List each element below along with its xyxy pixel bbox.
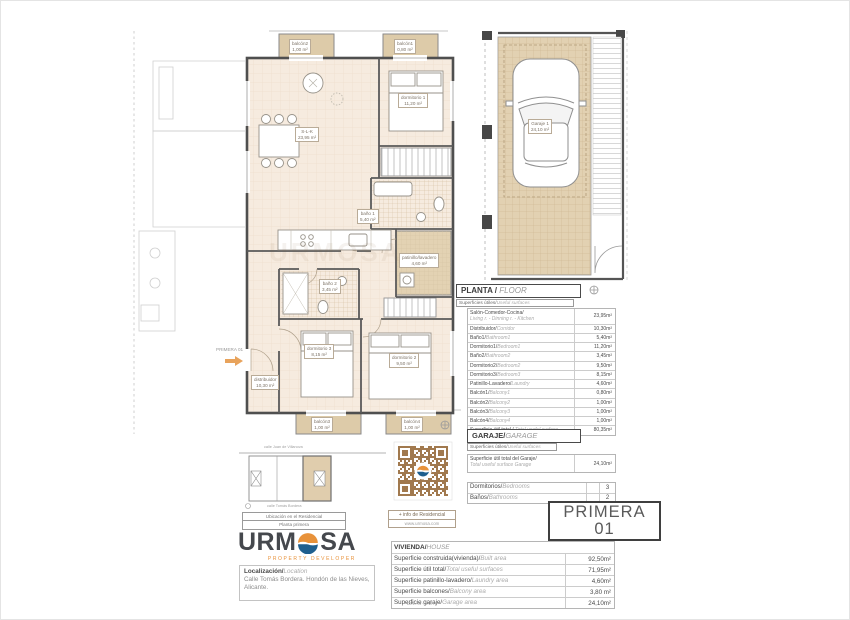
brand-logo-urm: URM bbox=[238, 530, 296, 555]
qr-caption-url: www.urmosa.com bbox=[388, 519, 456, 528]
floor-table-row: Balcón4/Balcony4 1,00m² bbox=[468, 416, 615, 425]
location-box: Localización/Location Calle Tomás Border… bbox=[239, 565, 375, 601]
floorplan-page: URMOSA S-L-K 23,95 m² dormitorio 111,20 … bbox=[0, 0, 850, 620]
counts-row: Dormitorios/Bedrooms 3 bbox=[468, 483, 615, 493]
floor-table-row: Baño1/Bathroom1 5,40m² bbox=[468, 333, 615, 342]
room-label-balcony3: balcón31,00 m² bbox=[311, 417, 333, 432]
garage-table: Superficie útil total del Garaje/ Total … bbox=[467, 454, 616, 473]
room-label-living: S-L-K 23,95 m² bbox=[295, 127, 319, 142]
unit-badge: PRIMERA 01 bbox=[548, 501, 661, 541]
garage-table-row: Superficie útil total del Garaje/ Total … bbox=[468, 455, 615, 472]
room-label-balcony2: balcón21,00 m² bbox=[289, 39, 311, 54]
garage-table-title: GARAJE/GARAGE bbox=[467, 429, 581, 443]
street-label-bottom: calle Tomás Bordera bbox=[267, 504, 302, 508]
room-label-corridor: distribuidor10,30 m² bbox=[251, 375, 279, 390]
floor-table-row: Balcón2/Balcony2 1,00m² bbox=[468, 398, 615, 407]
unit-badge-line1: PRIMERA bbox=[563, 504, 645, 521]
room-label-bath1: baño 15,40 m² bbox=[357, 209, 379, 224]
floor-table-row: Dormitorio1/Bedroom1 11,20m² bbox=[468, 342, 615, 351]
room-label-bath2: baño 23,45 m² bbox=[319, 279, 341, 294]
house-table-row: Superficie útil total/Total useful surfa… bbox=[392, 564, 614, 575]
garage-plan bbox=[482, 30, 627, 281]
bed-dorm3 bbox=[301, 331, 353, 397]
house-table-row: Superficie balcones/Balcony area 3,80 m² bbox=[392, 586, 614, 597]
brand-logo-sa: SA bbox=[320, 530, 356, 555]
entry-label: PRIMERA 01 bbox=[216, 347, 243, 352]
floor-table: Salón-Comedor-Cocina/Living r. - Dinning… bbox=[467, 308, 616, 436]
main-unit bbox=[225, 31, 461, 434]
floor-table-title: PLANTA / FLOOR bbox=[456, 284, 581, 298]
neighbour-unit-fragments bbox=[134, 31, 245, 434]
qr-code bbox=[394, 442, 452, 500]
garage-table-subtitle: Superficies útiles/Useful surfaces bbox=[467, 443, 557, 451]
street-label-top: calle Juan de Villanova bbox=[264, 445, 303, 449]
room-label-dorm3: dormitorio 38,15 m² bbox=[304, 344, 334, 359]
floor-table-row: Distribuidor/Corridor 10,30m² bbox=[468, 324, 615, 333]
floor-table-row: Salón-Comedor-Cocina/Living r. - Dinning… bbox=[468, 309, 615, 324]
floor-table-row: Balcón1/Balcony1 0,80m² bbox=[468, 388, 615, 397]
floor-table-subtitle: Superficies útiles/Useful surfaces bbox=[456, 299, 574, 307]
site-mini-plan bbox=[239, 453, 386, 509]
watermark: URMOSA bbox=[269, 237, 403, 268]
brand-tagline: PROPERTY DEVELOPER bbox=[238, 556, 356, 562]
house-table-row: Superficie construida(vivienda)/Built ar… bbox=[392, 553, 614, 564]
urmosa-sun-wave-icon bbox=[297, 532, 319, 554]
floor-table-row: Baño2/Bathroom2 3,45m² bbox=[468, 351, 615, 360]
house-table: VIVIENDA/ HOUSE Superficie construida(vi… bbox=[391, 541, 615, 609]
room-label-dorm2: dormitorio 29,50 m² bbox=[389, 353, 419, 368]
brand-logo: URM SA PROPERTY DEVELOPER bbox=[238, 530, 356, 562]
room-label-dorm1: dormitorio 111,20 m² bbox=[398, 93, 428, 108]
location-address: Calle Tomás Bordera. Hondón de las Nieve… bbox=[244, 576, 370, 592]
scale-note: DIN A4 - e:1/75 bbox=[407, 601, 437, 606]
floor-table-row: Dormitorio2/Bedroom2 9,50m² bbox=[468, 361, 615, 370]
unit-badge-line2: 01 bbox=[594, 521, 614, 538]
house-table-row: Superficie patinillo-lavadero/Laundry ar… bbox=[392, 575, 614, 586]
floor-table-row: Balcón3/Balcony3 1,00m² bbox=[468, 407, 615, 416]
floor-table-row: Patinillo-Lavadero/Laundry 4,60m² bbox=[468, 379, 615, 388]
entry-arrow-icon bbox=[225, 356, 243, 366]
room-label-laundry: patinillo/lavadero4,60 m² bbox=[399, 253, 439, 268]
room-label-balcony4: balcón41,00 m² bbox=[401, 417, 423, 432]
floor-table-row: Dormitorio3/Bedroom3 8,15m² bbox=[468, 370, 615, 379]
house-table-header: VIVIENDA/ HOUSE bbox=[392, 542, 614, 553]
garage-label: Garaje 124,10 m² bbox=[528, 119, 552, 134]
room-label-balcony1: balcón10,80 m² bbox=[394, 39, 416, 54]
